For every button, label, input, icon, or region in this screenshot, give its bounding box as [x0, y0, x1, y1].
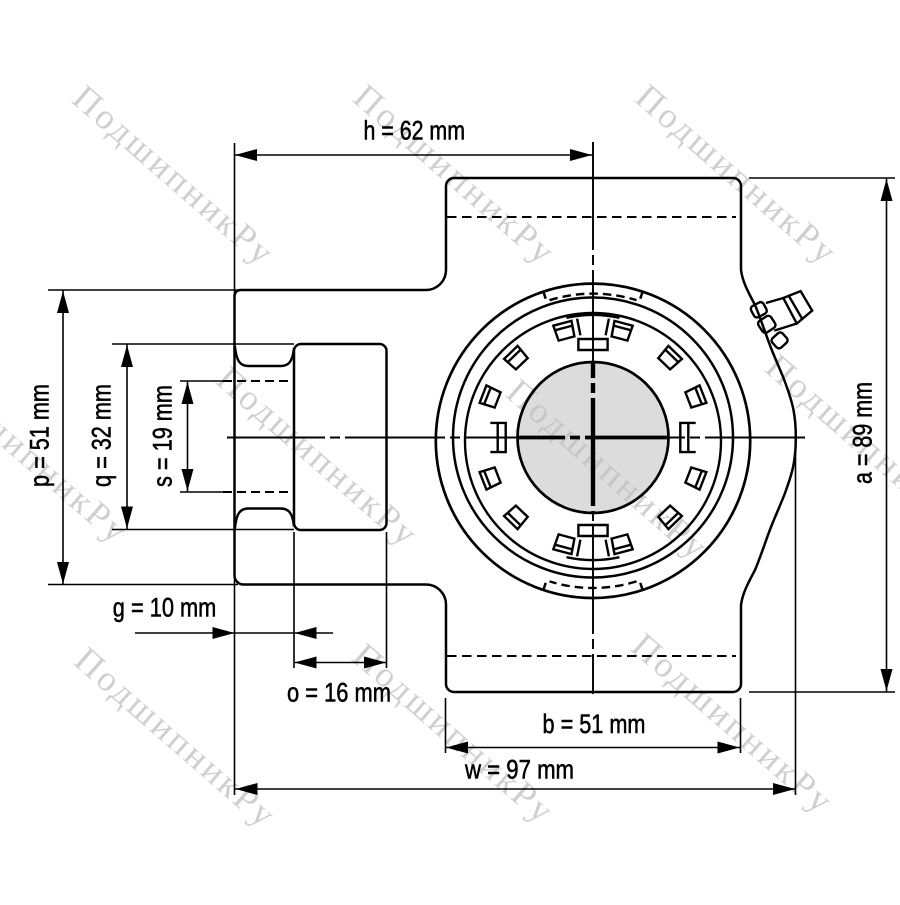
svg-text:q = 32 mm: q = 32 mm — [87, 384, 117, 487]
svg-text:o = 16 mm: o = 16 mm — [287, 678, 391, 708]
svg-text:w = 97 mm: w = 97 mm — [464, 755, 574, 785]
svg-text:s = 19 mm: s = 19 mm — [148, 385, 178, 487]
svg-text:a = 89 mm: a = 89 mm — [848, 382, 878, 484]
svg-text:p = 51 mm: p = 51 mm — [25, 384, 55, 487]
svg-text:g = 10 mm: g = 10 mm — [113, 593, 217, 623]
svg-text:h = 62 mm: h = 62 mm — [364, 116, 466, 146]
svg-text:b = 51 mm: b = 51 mm — [543, 709, 646, 739]
